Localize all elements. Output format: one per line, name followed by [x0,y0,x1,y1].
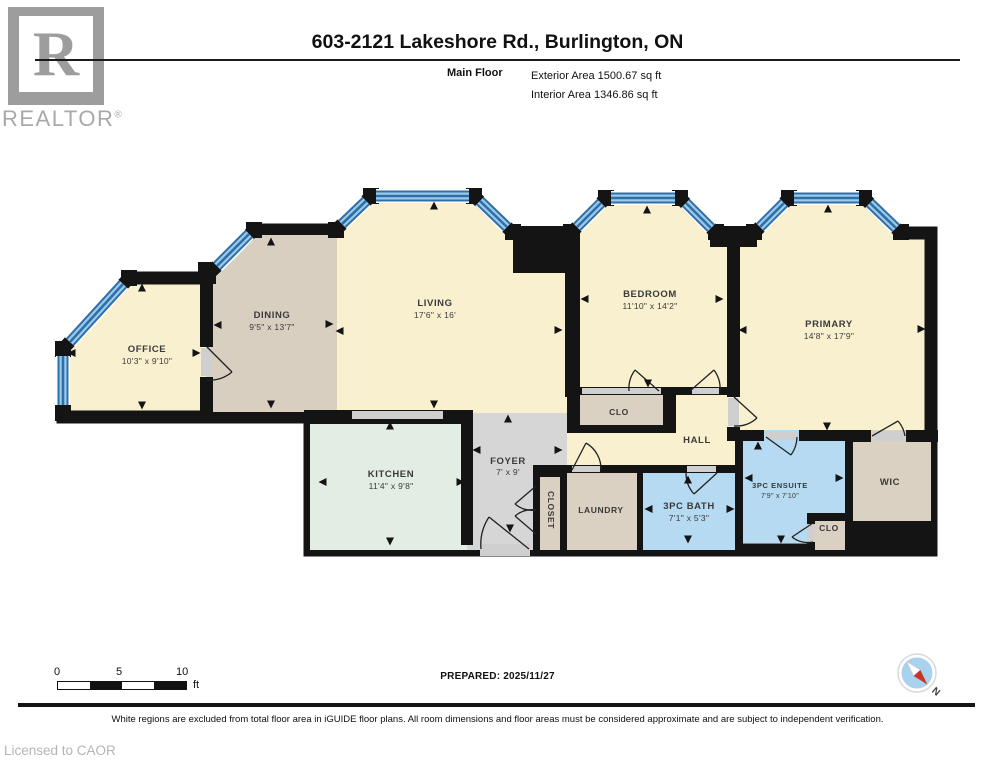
registered-mark: ® [114,110,123,121]
room-label-office: OFFICE [128,344,166,355]
room-label-living: LIVING [417,298,452,309]
realtor-wordmark: REALTOR® [2,106,123,132]
compass-north-label: N [929,686,942,699]
room-label-clo-bedroom: CLO [609,407,629,417]
room-dims-bath: 7'1" x 5'3" [669,513,709,523]
interior-area: Interior Area 1346.86 sq ft [531,86,661,105]
room-label-kitchen: KITCHEN [368,469,414,480]
room-label-primary: PRIMARY [805,319,853,330]
room-dims-dining: 9'5" x 13'7" [249,322,295,332]
header-rule [35,59,960,61]
area-summary: Exterior Area 1500.67 sq ft Interior Are… [531,67,661,104]
room-dims-primary: 14'8" x 17'9" [804,331,855,341]
floor-plan-page: OFFICE 10'3" x 9'10" DINING 9'5" x 13'7"… [0,0,995,768]
room-wic [845,430,931,521]
room-label-hall: HALL [683,435,711,446]
footer-rule [18,703,975,707]
room-dims-ensuite: 7'9" x 7'10" [761,493,799,500]
license-text: Licensed to CAOR [4,743,116,758]
room-dims-kitchen: 11'4" x 9'8" [369,481,414,491]
room-dims-foyer: 7' x 9' [496,467,520,477]
floor-label: Main Floor [447,67,503,79]
compass-icon: N [893,650,945,702]
room-label-ensuite: 3PC ENSUITE [752,481,808,490]
room-dims-office: 10'3" x 9'10" [122,356,173,366]
disclaimer-text: White regions are excluded from total fl… [0,714,995,725]
scale-bar-segments [57,681,187,690]
room-label-clo-ensuite: CLO [819,523,839,533]
room-label-foyer: FOYER [490,456,526,467]
page-title: 603-2121 Lakeshore Rd., Burlington, ON [0,31,995,54]
room-label-laundry: LAUNDRY [578,505,623,515]
prepared-date: PREPARED: 2025/11/27 [0,671,995,682]
room-dims-bedroom: 11'10" x 14'2" [623,301,678,311]
floor-plan: OFFICE 10'3" x 9'10" DINING 9'5" x 13'7"… [0,0,995,768]
room-label-dining: DINING [254,310,291,321]
room-dims-living: 17'6" x 16' [414,310,456,320]
room-label-wic: WIC [880,477,900,488]
exterior-area: Exterior Area 1500.67 sq ft [531,67,661,86]
room-label-bedroom: BEDROOM [623,289,677,300]
room-label-bath: 3PC BATH [663,501,715,512]
room-label-closet: CLOSET [546,491,556,529]
realtor-wordmark-text: REALTOR [2,106,114,131]
realtor-logo: R [8,7,104,105]
realtor-logo-panel: R [19,16,93,92]
